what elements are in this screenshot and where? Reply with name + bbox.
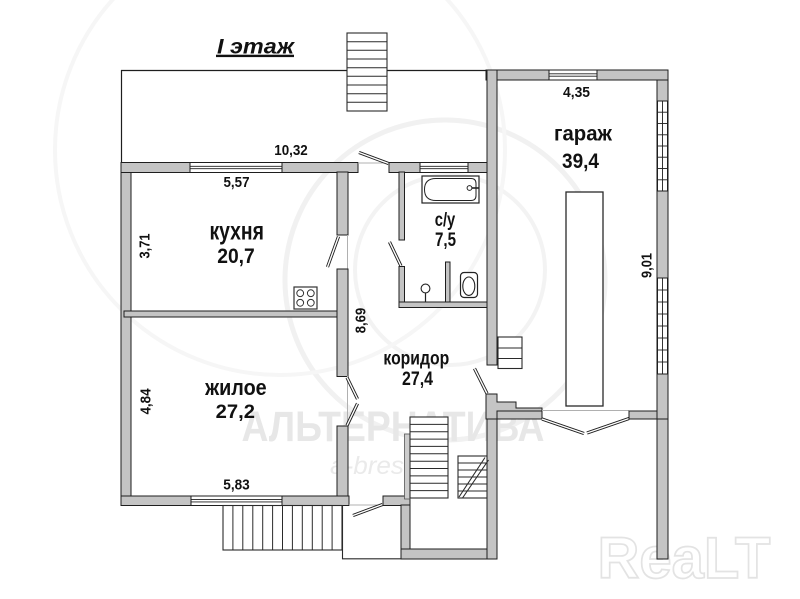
- svg-text:4,35: 4,35: [563, 84, 590, 101]
- svg-text:10,32: 10,32: [274, 142, 308, 159]
- svg-text:с/у: с/у: [435, 210, 456, 231]
- svg-text:коридор: коридор: [383, 348, 449, 370]
- svg-text:39,4: 39,4: [562, 149, 599, 173]
- svg-text:5,83: 5,83: [223, 477, 250, 494]
- svg-text:4,84: 4,84: [138, 388, 155, 415]
- svg-text:ReaLT: ReaLT: [598, 526, 771, 591]
- svg-text:27,2: 27,2: [216, 401, 255, 423]
- svg-text:гараж: гараж: [554, 123, 613, 146]
- svg-text:7,5: 7,5: [435, 230, 456, 251]
- svg-text:жилое: жилое: [204, 375, 266, 400]
- svg-text:5,57: 5,57: [224, 174, 250, 191]
- svg-text:8,69: 8,69: [352, 308, 369, 334]
- svg-text:3,71: 3,71: [137, 234, 154, 259]
- svg-text:кухня: кухня: [209, 218, 264, 246]
- svg-text:20,7: 20,7: [217, 244, 255, 268]
- svg-text:9,01: 9,01: [639, 253, 656, 278]
- svg-text:27,4: 27,4: [402, 369, 433, 390]
